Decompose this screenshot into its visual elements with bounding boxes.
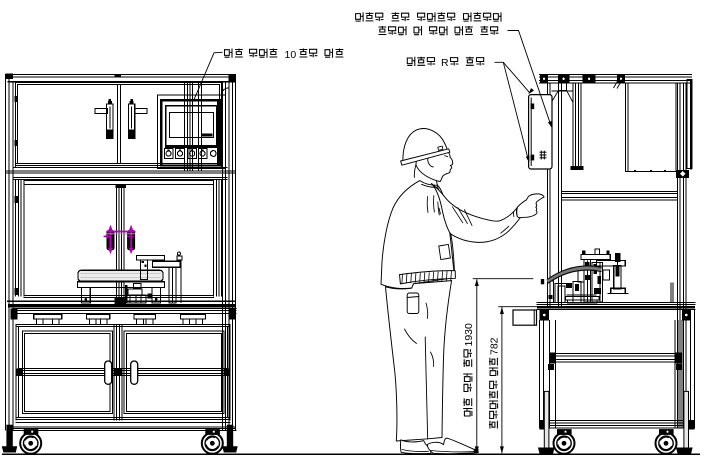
svg-text:782: 782 bbox=[489, 337, 501, 355]
svg-text:10: 10 bbox=[285, 49, 297, 61]
svg-text:1930: 1930 bbox=[463, 323, 475, 347]
svg-text:R: R bbox=[441, 57, 449, 69]
